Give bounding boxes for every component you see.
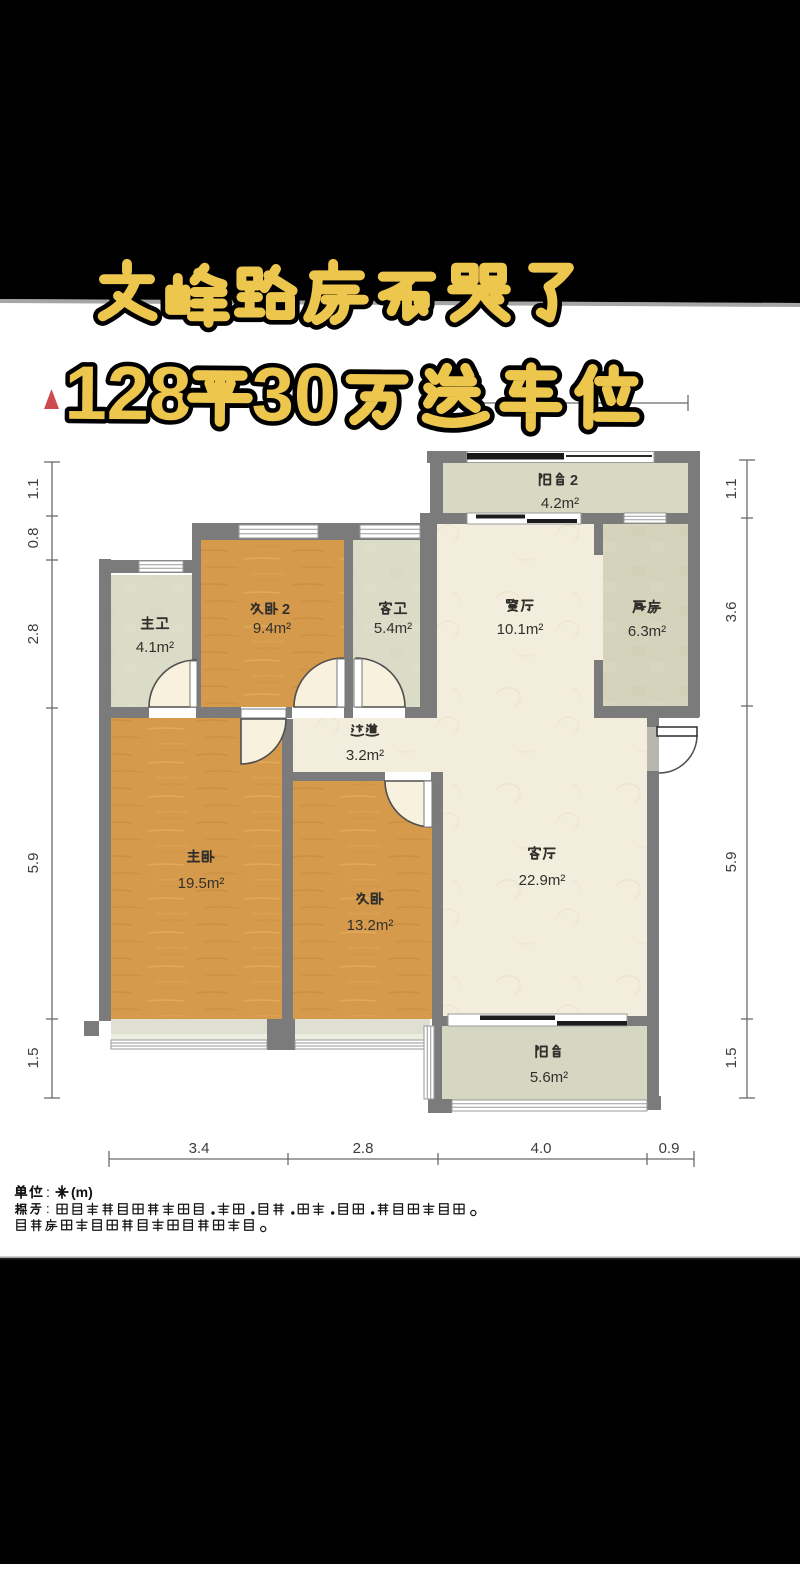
svg-text:5.6m²: 5.6m² — [530, 1069, 568, 1086]
svg-text:19.5m²: 19.5m² — [178, 875, 225, 892]
svg-text:3.6: 3.6 — [723, 602, 740, 623]
svg-text:10.1m²: 10.1m² — [497, 621, 544, 638]
svg-text:128: 128 — [64, 351, 191, 437]
svg-text:3.2m²: 3.2m² — [346, 747, 384, 764]
svg-text:2.8: 2.8 — [25, 624, 42, 645]
svg-text:2: 2 — [570, 473, 578, 489]
svg-text:1.1: 1.1 — [723, 479, 740, 500]
svg-text::: : — [46, 1201, 50, 1216]
svg-text:30: 30 — [251, 352, 336, 438]
svg-text:1.5: 1.5 — [723, 1048, 740, 1069]
svg-text:0.8: 0.8 — [25, 528, 42, 549]
svg-text:5.9: 5.9 — [25, 853, 42, 874]
svg-text:9.4m²: 9.4m² — [253, 620, 291, 637]
svg-text:1.5: 1.5 — [25, 1048, 42, 1069]
svg-text:3.4: 3.4 — [189, 1140, 210, 1157]
svg-text::: : — [46, 1184, 50, 1200]
svg-text:5.4m²: 5.4m² — [374, 620, 412, 637]
svg-text:2.8: 2.8 — [353, 1140, 374, 1157]
svg-text:4.2m²: 4.2m² — [541, 495, 579, 512]
svg-text:1.1: 1.1 — [25, 479, 42, 500]
svg-text:6.3m²: 6.3m² — [628, 623, 666, 640]
svg-text:(m): (m) — [71, 1184, 93, 1200]
svg-text:0.9: 0.9 — [659, 1140, 680, 1157]
svg-text:4.1m²: 4.1m² — [136, 639, 174, 656]
svg-text:13.2m²: 13.2m² — [347, 917, 394, 934]
svg-text:5.9: 5.9 — [723, 852, 740, 873]
svg-text:2: 2 — [282, 602, 290, 618]
svg-text:22.9m²: 22.9m² — [519, 872, 566, 889]
svg-text:4.0: 4.0 — [531, 1140, 552, 1157]
